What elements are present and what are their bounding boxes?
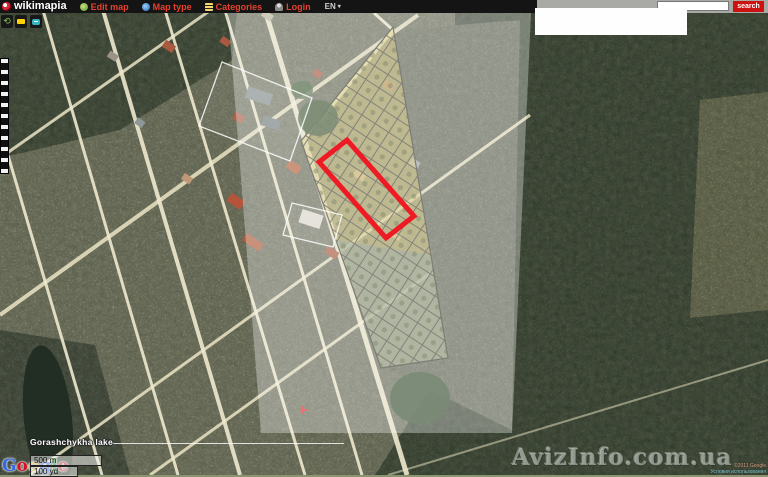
chat-bubble-icon — [32, 19, 40, 25]
menu-categories[interactable]: Categories — [205, 2, 263, 12]
minimap-icon — [17, 19, 25, 24]
menu-edit-map[interactable]: Edit map — [80, 2, 129, 12]
lake-label[interactable]: Gorashchykha lake — [30, 437, 113, 447]
scale-metric: 500 m — [30, 455, 102, 466]
menu-login[interactable]: Login — [275, 2, 311, 12]
login-icon — [275, 3, 283, 11]
chevron-down-icon: ▾ — [338, 3, 341, 10]
edit-map-icon — [80, 3, 88, 11]
categories-icon — [205, 3, 213, 11]
highlight-overlay — [228, 13, 531, 433]
map-scale: 500 m 100 yd — [30, 455, 102, 477]
top-menu-bar: wikimapia Edit map Map type Categories L… — [0, 0, 537, 13]
language-selector[interactable]: EN ▾ — [325, 2, 341, 11]
search-button[interactable]: search — [733, 1, 764, 12]
circular-arrows-icon: ⟲ — [3, 17, 11, 26]
menu-map-type[interactable]: Map type — [142, 2, 192, 12]
blanked-out-box — [535, 8, 687, 35]
map-type-icon — [142, 3, 150, 11]
satellite-map[interactable] — [0, 0, 768, 475]
map-tool-measure-button[interactable]: ⟲ — [1, 15, 13, 28]
map-tool-minimap-button[interactable] — [15, 15, 27, 28]
map-tool-comments-button[interactable] — [30, 15, 42, 28]
wikimapia-logo-text: wikimapia — [14, 0, 67, 13]
scale-imperial: 100 yd — [30, 466, 78, 477]
zoom-slider[interactable] — [0, 58, 9, 174]
wikimapia-logo-icon — [2, 2, 11, 11]
wikimapia-logo[interactable]: wikimapia — [2, 0, 67, 13]
leader-line — [96, 443, 344, 444]
avizinfo-watermark: AvizInfo.com.ua — [512, 444, 733, 471]
